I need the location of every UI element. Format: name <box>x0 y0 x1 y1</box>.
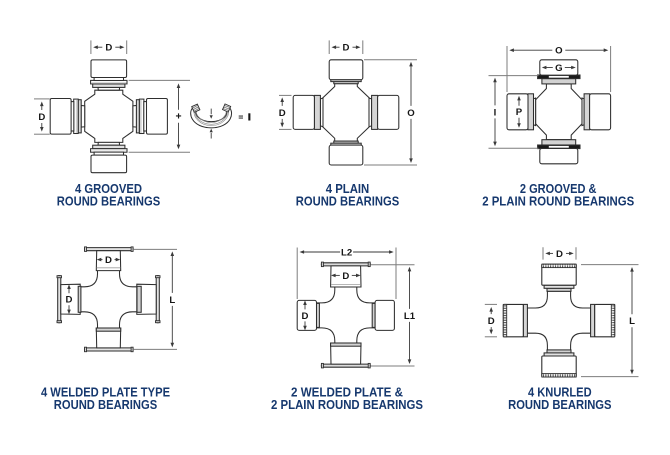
svg-text:L2: L2 <box>341 247 352 258</box>
svg-text:L: L <box>169 295 175 306</box>
svg-text:+: + <box>175 112 181 123</box>
svg-text:L: L <box>629 316 635 327</box>
svg-text:D: D <box>302 311 309 322</box>
svg-text:ROUND BEARINGS: ROUND BEARINGS <box>296 195 399 209</box>
svg-text:D: D <box>105 255 112 266</box>
svg-text:D: D <box>105 43 112 54</box>
svg-text:2 PLAIN ROUND BEARINGS: 2 PLAIN ROUND BEARINGS <box>482 195 634 209</box>
svg-text:L1: L1 <box>404 311 416 322</box>
svg-text:D: D <box>38 112 45 123</box>
svg-text:ROUND BEARINGS: ROUND BEARINGS <box>54 398 157 412</box>
svg-text:G: G <box>555 63 562 74</box>
svg-text:D: D <box>279 108 286 119</box>
svg-text:I: I <box>494 107 497 118</box>
svg-text:ROUND BEARINGS: ROUND BEARINGS <box>508 398 611 412</box>
svg-text:2 PLAIN ROUND BEARINGS: 2 PLAIN ROUND BEARINGS <box>271 398 423 412</box>
svg-text:D: D <box>342 271 349 282</box>
svg-text:O: O <box>555 46 563 57</box>
svg-text:D: D <box>343 43 350 54</box>
svg-text:D: D <box>66 295 73 306</box>
svg-text:D: D <box>488 316 495 327</box>
svg-text:O: O <box>407 108 415 119</box>
svg-text:P: P <box>516 107 523 118</box>
svg-text:D: D <box>556 249 563 260</box>
svg-text:ROUND BEARINGS: ROUND BEARINGS <box>57 195 160 209</box>
